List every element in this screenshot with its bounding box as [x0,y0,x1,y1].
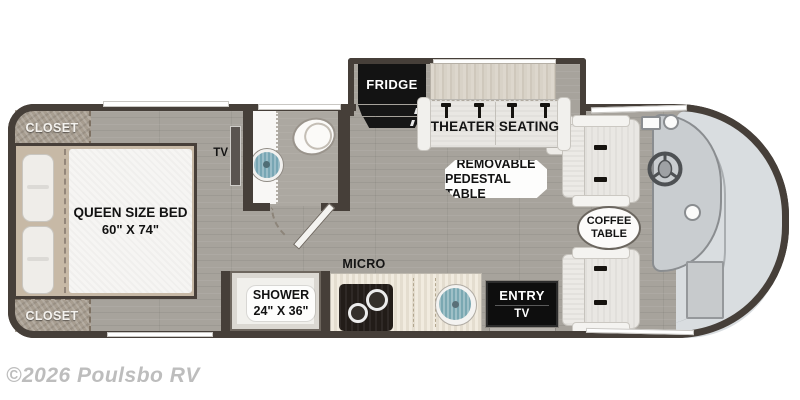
microwave-label: MICRO [330,257,398,272]
theater-seating-backrest [430,63,556,100]
bed-divider-line [64,149,66,293]
pedestal-table-label-line2: PEDESTAL TABLE [445,172,547,202]
mattress: QUEEN SIZE BED 60" X 74" [69,149,192,293]
coffee-table-label-line1: COFFEE [587,215,632,228]
coffee-table-label-line2: TABLE [591,228,627,241]
bed-name-label: QUEEN SIZE BED [73,205,187,220]
seatbelt-icon [507,103,517,119]
theater-seating-label: THEATER SEATING [424,119,566,135]
pillow [22,154,54,222]
burner-icon [348,303,368,323]
fridge-door [358,105,426,116]
window [258,104,341,110]
entry-tv: ENTRY TV [486,281,558,327]
cup-holder [684,204,701,221]
chair-seat [584,249,640,329]
watermark: ©2026 Poulsbo RV [6,364,200,388]
seatbelt-icon [540,103,550,119]
chair-backrest [562,254,586,326]
seatbelt-mark [594,177,607,182]
seatbelt-mark [594,145,607,150]
shower-label: SHOWER 24" X 36" [247,286,315,321]
bathroom-wall [243,203,270,211]
captain-chair-passenger [562,249,640,332]
bed-size-label: 60" X 74" [102,222,159,237]
seatbelt-icon [441,103,451,119]
fridge: FRIDGE [358,64,426,104]
seatbelt-mark [594,266,607,271]
pillow [22,226,54,294]
cup-holder [663,114,679,130]
fridge-door [362,117,422,128]
shower-name-label: SHOWER [253,288,309,304]
window [107,332,213,337]
entry-tv-label: TV [514,308,530,320]
shower-size-label: 24" X 36" [254,304,309,320]
seatbelt-icon [474,103,484,119]
steering-wheel [645,149,685,189]
captain-chair-driver [562,117,640,205]
entry-tv-divider [495,305,549,306]
entry-step-well [686,261,724,319]
chair-armrest [572,195,630,207]
queen-bed: QUEEN SIZE BED 60" X 74" [13,143,197,299]
rv-floorplan-page: CLOSET CLOSET QUEEN SIZE BED 60" X 74" T… [0,0,800,400]
entry-step [489,327,556,334]
closet-bottom: CLOSET [15,298,91,332]
entry-label: ENTRY [499,288,545,303]
counter-seam [413,278,414,327]
closet-top-label: CLOSET [25,121,78,135]
chair-armrest [572,115,630,127]
cooktop [339,284,393,331]
kitchen-sink [435,284,477,326]
bedroom-tv-label: TV [196,147,228,161]
bathroom-sink [251,149,283,181]
bathroom-wall [338,107,350,211]
burner-icon [366,289,388,311]
bedroom-tv [230,126,241,186]
shower-wall [221,271,230,332]
window [103,101,229,107]
coffee-table: COFFEE TABLE [577,206,641,250]
closet-bottom-label: CLOSET [25,309,78,323]
dash-console [641,116,661,130]
fridge-door-handle [410,120,415,126]
fridge-label: FRIDGE [366,77,418,92]
pedestal-table-label: REMOVABLE PEDESTAL TABLE [445,160,547,198]
closet-top: CLOSET [15,110,91,147]
bathroom-wall [243,107,253,211]
shower-wall [321,271,330,332]
seatbelt-mark [594,300,607,305]
chair-seat [584,119,640,203]
